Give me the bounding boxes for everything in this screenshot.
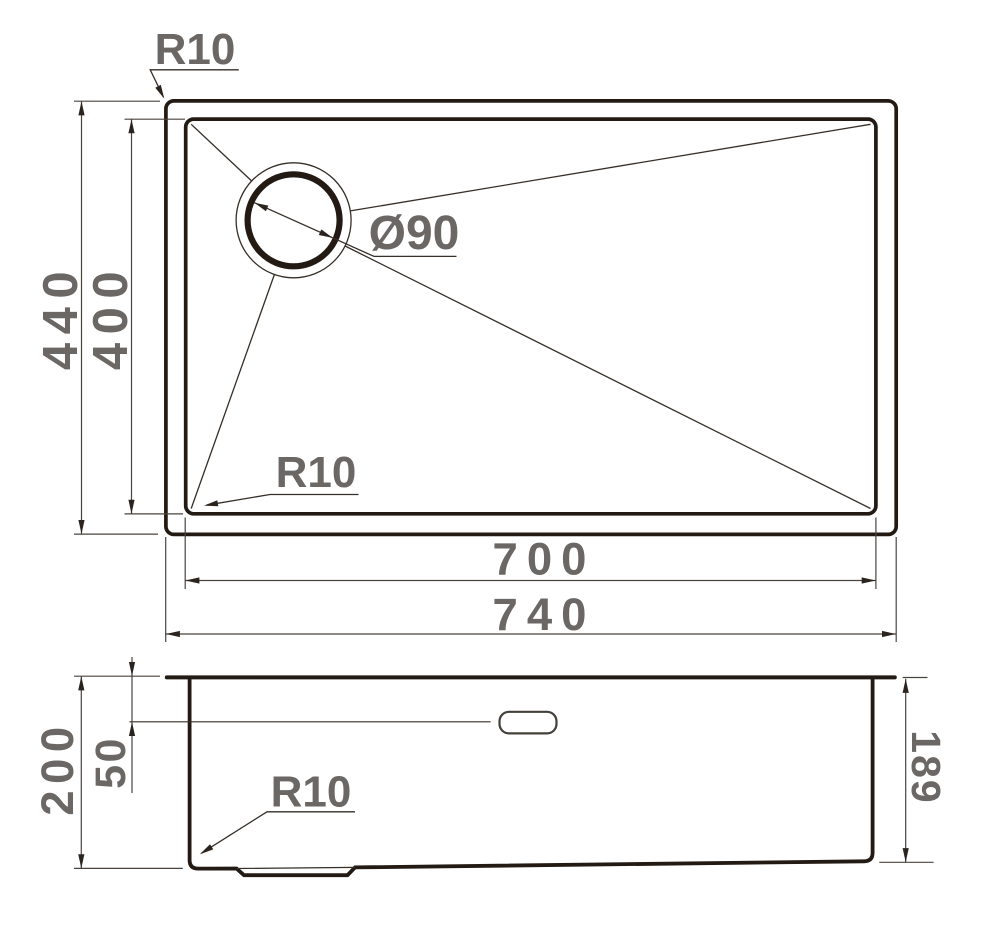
svg-text:440: 440 (34, 263, 88, 370)
svg-text:400: 400 (84, 263, 138, 370)
svg-text:200: 200 (32, 720, 83, 815)
svg-text:740: 740 (493, 589, 596, 640)
svg-text:50: 50 (87, 736, 135, 789)
svg-text:R10: R10 (276, 448, 357, 497)
svg-text:R10: R10 (155, 25, 236, 74)
svg-text:R10: R10 (271, 768, 352, 817)
svg-text:Ø90: Ø90 (369, 207, 460, 260)
svg-text:189: 189 (903, 730, 949, 804)
svg-text:700: 700 (493, 534, 596, 585)
